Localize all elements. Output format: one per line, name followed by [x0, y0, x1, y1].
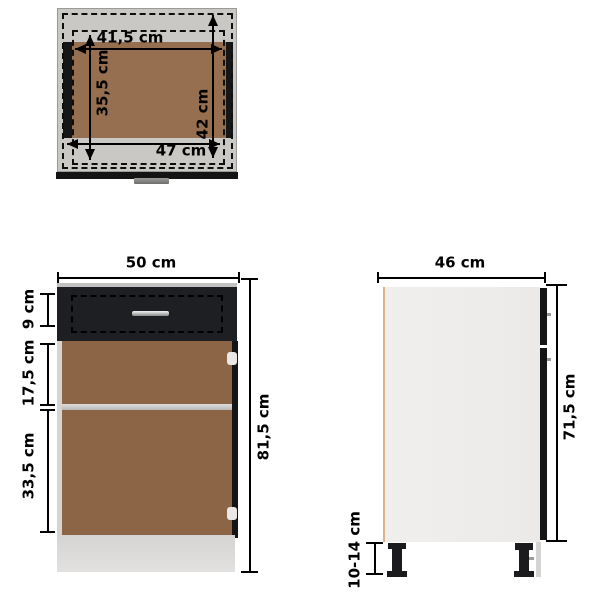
- cabinet-base: [57, 535, 235, 572]
- door-side-strip-lower: [540, 348, 547, 540]
- product-dimension-diagram: 41,5 cm 35,5 cm 42 cm 47 cm: [0, 0, 600, 600]
- tick-top: [40, 343, 55, 345]
- tick-top: [546, 284, 567, 286]
- tick-left: [377, 272, 379, 283]
- arrowhead-left-icon: [67, 139, 78, 149]
- dim-line: [47, 344, 49, 406]
- tick-top: [366, 542, 383, 544]
- dim-total-height-label: 81,5 cm: [257, 394, 272, 461]
- drawer-handle-front: [132, 311, 169, 316]
- leg-stem: [392, 549, 402, 572]
- drawer-handle-top: [134, 178, 169, 184]
- leg-plate: [515, 543, 533, 550]
- dim-top-compartment-label: 17,5 cm: [22, 340, 37, 407]
- tick-top: [40, 409, 55, 411]
- hinge-mark-bottom: [547, 358, 551, 361]
- dim-outer-width-label: 47 cm: [156, 144, 207, 159]
- dim-drawer-depth-label: 42 cm: [196, 89, 211, 140]
- dim-bottom-compartment-label: 33,5 cm: [22, 433, 37, 500]
- tick-bottom: [40, 404, 55, 406]
- tick-bottom: [241, 571, 258, 573]
- dim-depth-label: 46 cm: [435, 256, 486, 271]
- tick-bottom: [546, 540, 567, 542]
- dim-line: [374, 543, 376, 575]
- dim-width-label: 50 cm: [126, 256, 177, 271]
- dim-line: [89, 35, 91, 160]
- arrowhead-down-icon: [85, 149, 95, 160]
- side-panel-body: [385, 287, 540, 542]
- tick-top: [241, 278, 258, 280]
- arrowhead-up-icon: [208, 15, 218, 26]
- cabinet-interior: [62, 341, 233, 535]
- leg-stem: [519, 550, 529, 571]
- shelf-divider: [62, 404, 233, 410]
- dim-inner-width-label: 41,5 cm: [97, 31, 164, 46]
- tick-right: [238, 272, 240, 283]
- tick-left: [57, 272, 59, 283]
- tick-bottom: [40, 325, 55, 327]
- arrowhead-right-icon: [209, 139, 220, 149]
- dim-line: [556, 285, 558, 542]
- tick-top: [40, 293, 55, 295]
- dim-line: [58, 277, 239, 279]
- dim-leg-height-label: 10-14 cm: [348, 511, 363, 589]
- leg-foot: [514, 571, 534, 577]
- dim-carcass-height-label: 71,5 cm: [563, 374, 578, 441]
- dim-inner-depth-label: 35,5 cm: [96, 50, 111, 117]
- hinge-top: [227, 352, 237, 365]
- dim-line: [47, 410, 49, 533]
- tick-right: [544, 272, 546, 283]
- dim-line: [249, 279, 251, 573]
- dim-line: [212, 15, 214, 158]
- dim-line: [47, 294, 49, 327]
- hinge-mark-top: [547, 313, 551, 316]
- dim-drawer-height-label: 9 cm: [22, 289, 37, 329]
- leg-foot: [387, 571, 407, 577]
- side-front-edge-line: [383, 287, 385, 542]
- dim-line: [378, 277, 545, 279]
- door-side-strip-upper: [540, 288, 547, 345]
- tick-bottom: [366, 573, 383, 575]
- door-bottom-edge: [536, 542, 541, 577]
- hinge-bottom: [227, 507, 237, 520]
- tick-bottom: [40, 531, 55, 533]
- leg-adjuster-pin: [529, 557, 534, 560]
- arrowhead-up-icon: [85, 35, 95, 46]
